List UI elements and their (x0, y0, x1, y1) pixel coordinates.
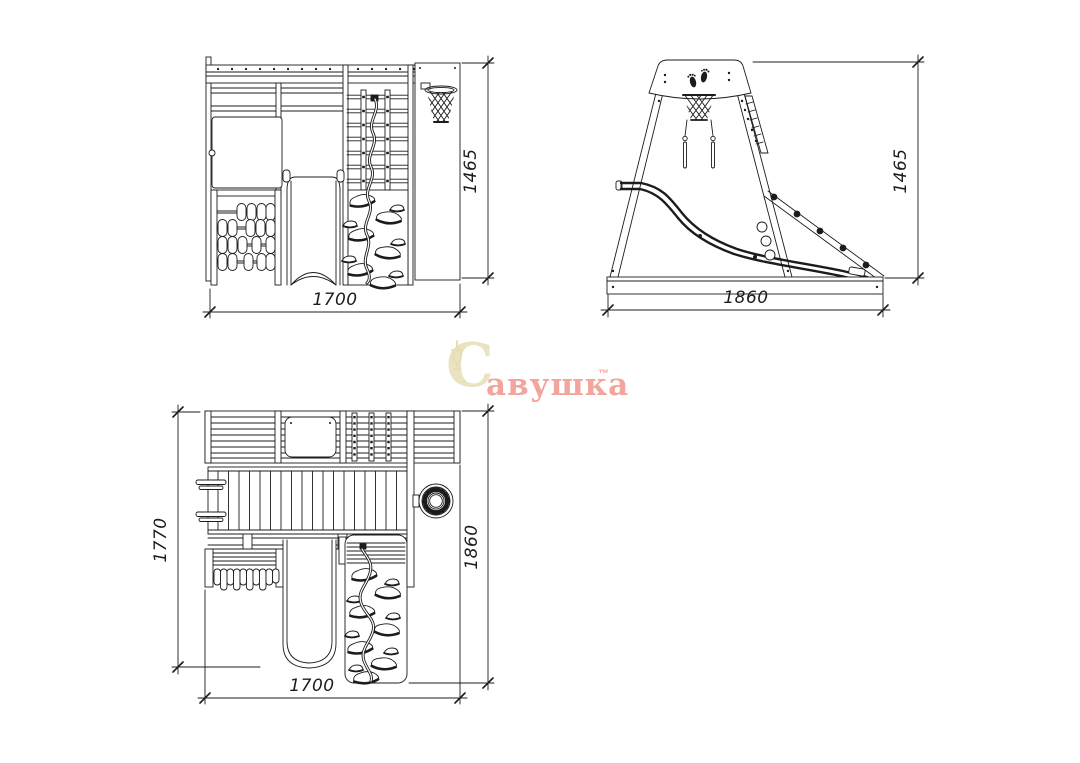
side-gym-rings (683, 120, 715, 168)
plan-platform-deck (208, 467, 413, 534)
dim-label-side-width: 1860 (723, 288, 768, 308)
front-play-panel (209, 117, 282, 188)
plan-panel-top (285, 417, 336, 457)
plan-basketball-hoop (413, 484, 453, 518)
front-abacus (211, 190, 281, 285)
side-top-arch (649, 60, 751, 99)
dim-label-plan-depth-left: 1770 (151, 517, 171, 562)
dim-label-plan-width: 1700 (289, 676, 334, 696)
dim-label-side-height: 1465 (891, 148, 911, 193)
front-top-beam (206, 65, 416, 83)
dimension-front-width: 1700 (203, 284, 467, 318)
plan-abacus-beads (214, 569, 279, 590)
dimension-front-height: 1465 (461, 56, 494, 285)
front-climbing-wall (342, 190, 408, 289)
side-view: 1860 1465 (601, 55, 924, 317)
side-slide (616, 181, 867, 281)
plan-top-band (205, 411, 460, 463)
plan-view: 1770 1860 1700 (151, 404, 494, 704)
dim-label-front-width: 1700 (312, 290, 357, 310)
front-basketball-hoop (415, 63, 465, 280)
blueprint-canvas: 1700 1465 (0, 0, 1080, 763)
abacus-beads (218, 204, 275, 271)
front-slide (283, 170, 344, 285)
plan-slide (283, 540, 336, 668)
front-view: 1700 1465 (203, 56, 494, 318)
dim-label-plan-depth-right: 1860 (462, 524, 482, 569)
side-wall-edge (745, 96, 768, 153)
front-left-post (206, 57, 211, 281)
plan-climbing-wall (345, 535, 407, 684)
dim-label-front-height: 1465 (461, 148, 481, 193)
plan-abacus (205, 549, 284, 590)
playground-drawing: 1700 1465 (0, 0, 1080, 763)
